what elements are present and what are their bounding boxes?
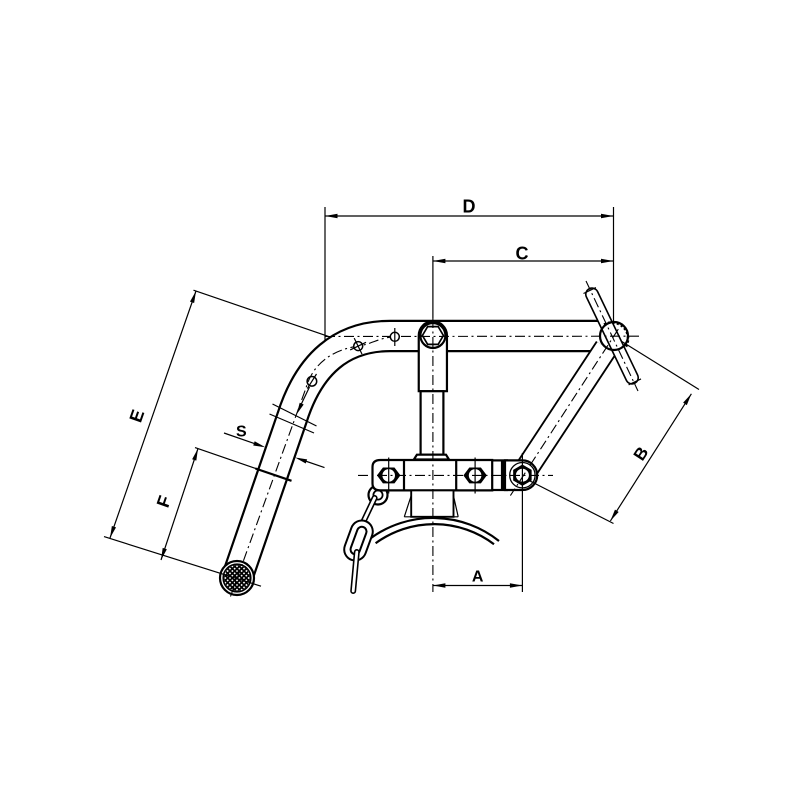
- svg-text:C: C: [516, 243, 529, 263]
- svg-text:S: S: [236, 424, 247, 441]
- svg-text:D: D: [463, 197, 476, 217]
- svg-text:A: A: [472, 569, 484, 586]
